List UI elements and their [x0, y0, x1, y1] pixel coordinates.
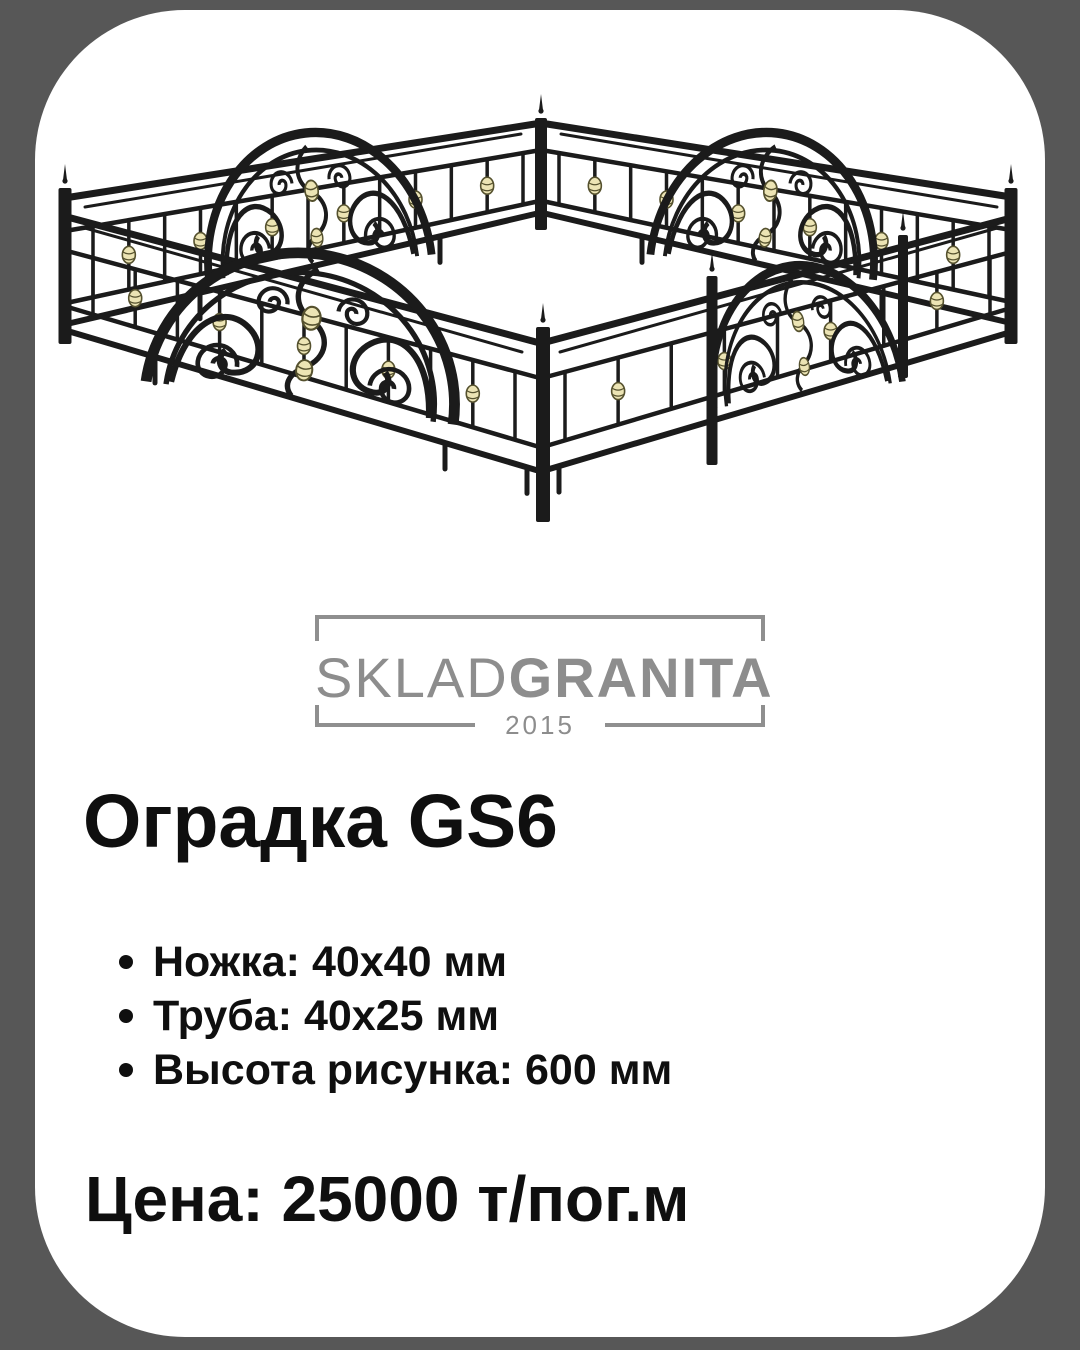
- brand-name-bold: GRANITA: [509, 646, 774, 709]
- spec-text: Ножка: 40х40 мм: [153, 938, 507, 987]
- price-label: Цена: 25000 т/пог.м: [85, 1162, 689, 1236]
- spec-text: Труба: 40х25 мм: [153, 992, 499, 1041]
- product-image: [35, 80, 1045, 600]
- spec-list: Ножка: 40х40 мм Труба: 40х25 мм Высота р…: [119, 935, 672, 1097]
- brand-logo: SKLADGRANITA 2015: [315, 615, 765, 727]
- bullet-dot-icon: [119, 1063, 133, 1077]
- product-card: SKLADGRANITA 2015 Оградка GS6 Ножка: 40х…: [35, 10, 1045, 1337]
- spec-item: Ножка: 40х40 мм: [119, 935, 672, 989]
- bullet-dot-icon: [119, 955, 133, 969]
- spec-text: Высота рисунка: 600 мм: [153, 1046, 672, 1095]
- logo-frame-corner: [315, 619, 319, 641]
- brand-name: SKLADGRANITA: [315, 645, 765, 710]
- product-title: Оградка GS6: [83, 778, 558, 864]
- bullet-dot-icon: [119, 1009, 133, 1023]
- fence-illustration: [35, 80, 1045, 600]
- logo-frame-corner: [761, 619, 765, 641]
- spec-item: Труба: 40х25 мм: [119, 989, 672, 1043]
- ad-page: { "page": { "background": "#575757", "ca…: [0, 0, 1080, 1350]
- brand-name-regular: SKLAD: [315, 646, 509, 709]
- brand-year: 2015: [315, 710, 765, 741]
- spec-item: Высота рисунка: 600 мм: [119, 1043, 672, 1097]
